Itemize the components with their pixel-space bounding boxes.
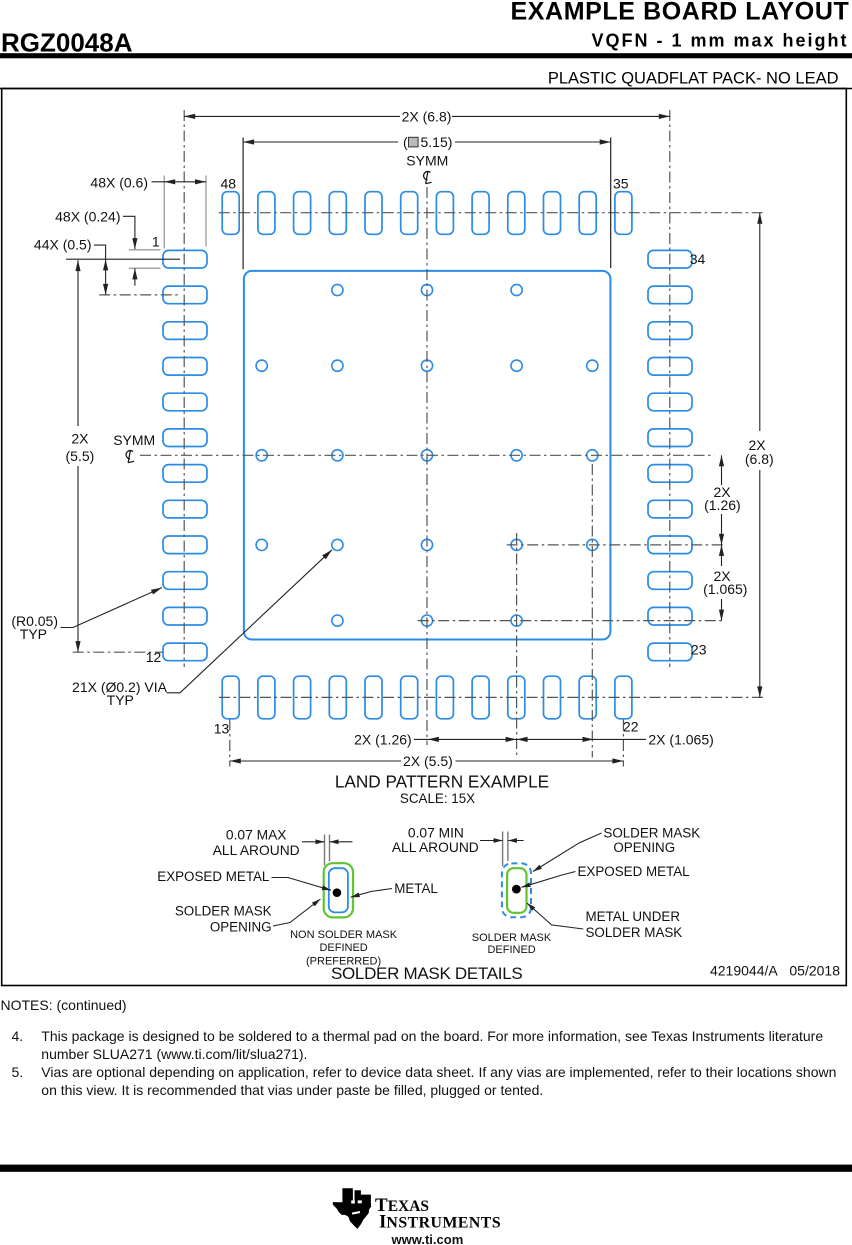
svg-text:PLASTIC QUADFLAT PACK- NO LEAD: PLASTIC QUADFLAT PACK- NO LEAD	[548, 70, 839, 88]
svg-text:(1.26): (1.26)	[704, 497, 741, 513]
svg-text:INSTRUMENTS: INSTRUMENTS	[379, 1212, 501, 1233]
svg-text:DEFINED: DEFINED	[487, 944, 535, 956]
svg-text:SOLDER MASK: SOLDER MASK	[586, 925, 683, 940]
svg-text:44X (0.5): 44X (0.5)	[34, 236, 92, 252]
svg-text:This package is designed to be: This package is designed to be soldered …	[41, 1028, 823, 1044]
svg-text:2X (5.5): 2X (5.5)	[403, 753, 453, 769]
svg-text:DEFINED: DEFINED	[319, 942, 367, 954]
svg-text:on this view. It is recommende: on this view. It is recommended that via…	[41, 1082, 543, 1098]
svg-text:EXPOSED METAL: EXPOSED METAL	[578, 864, 690, 879]
svg-text:1: 1	[152, 234, 160, 250]
svg-text:OPENING: OPENING	[613, 840, 675, 855]
svg-text:SCALE: 15X: SCALE: 15X	[400, 791, 475, 806]
svg-text:ALL AROUND: ALL AROUND	[213, 843, 300, 858]
svg-text:OPENING: OPENING	[210, 919, 272, 934]
svg-text:EXAMPLE BOARD LAYOUT: EXAMPLE BOARD LAYOUT	[511, 0, 850, 26]
svg-text:5.: 5.	[12, 1064, 24, 1080]
svg-text:NON SOLDER MASK: NON SOLDER MASK	[290, 929, 398, 941]
svg-text:METAL UNDER: METAL UNDER	[586, 909, 681, 924]
svg-text:2X (1.065): 2X (1.065)	[648, 731, 713, 747]
svg-text:TYP: TYP	[20, 626, 47, 642]
svg-text:2X: 2X	[71, 431, 89, 447]
svg-text:SYMM: SYMM	[406, 153, 448, 169]
svg-text:4219044/A 05/2018: 4219044/A 05/2018	[710, 963, 840, 979]
svg-text:number SLUA271 (www.ti.com/lit: number SLUA271 (www.ti.com/lit/slua271).	[41, 1046, 307, 1062]
svg-text:TYP: TYP	[107, 692, 134, 708]
svg-text:23: 23	[691, 642, 707, 658]
svg-text:SOLDER MASK: SOLDER MASK	[603, 825, 700, 840]
svg-text:NOTES: (continued): NOTES: (continued)	[1, 997, 127, 1013]
svg-text:0.07 MIN: 0.07 MIN	[408, 826, 464, 841]
svg-text:2X (6.8): 2X (6.8)	[402, 109, 452, 125]
svg-text:(6.8): (6.8)	[745, 451, 774, 467]
svg-text:VQFN - 1 mm max height: VQFN - 1 mm max height	[592, 31, 849, 51]
svg-text:12: 12	[146, 649, 162, 665]
svg-text:SOLDER MASK: SOLDER MASK	[175, 903, 272, 918]
svg-text:(5.5): (5.5)	[66, 448, 95, 464]
svg-text:METAL: METAL	[394, 881, 438, 896]
svg-text:(1.065): (1.065)	[703, 581, 747, 597]
svg-text:34: 34	[690, 251, 706, 267]
svg-text:Vias are optional depending on: Vias are optional depending on applicati…	[41, 1064, 836, 1080]
svg-text:SOLDER MASK DETAILS: SOLDER MASK DETAILS	[331, 964, 522, 983]
svg-text:48: 48	[221, 175, 237, 191]
svg-text:www.ti.com: www.ti.com	[391, 1232, 464, 1245]
svg-text:48X (0.24): 48X (0.24)	[55, 208, 120, 224]
svg-text:4.: 4.	[12, 1028, 24, 1044]
svg-text:5.15): 5.15)	[421, 134, 453, 150]
svg-text:SYMM: SYMM	[113, 432, 155, 448]
svg-text:ALL AROUND: ALL AROUND	[392, 840, 479, 855]
svg-text:48X (0.6): 48X (0.6)	[90, 174, 148, 190]
svg-text:(: (	[403, 134, 408, 150]
svg-text:0.07 MAX: 0.07 MAX	[226, 828, 287, 843]
svg-text:13: 13	[214, 720, 230, 736]
svg-text:EXPOSED METAL: EXPOSED METAL	[157, 869, 269, 884]
svg-text:SOLDER MASK: SOLDER MASK	[472, 932, 552, 944]
svg-text:2X (1.26): 2X (1.26)	[354, 731, 412, 747]
svg-text:RGZ0048A: RGZ0048A	[1, 28, 133, 58]
svg-text:LAND PATTERN EXAMPLE: LAND PATTERN EXAMPLE	[335, 772, 549, 792]
svg-text:22: 22	[623, 718, 639, 734]
svg-text:35: 35	[613, 175, 629, 191]
